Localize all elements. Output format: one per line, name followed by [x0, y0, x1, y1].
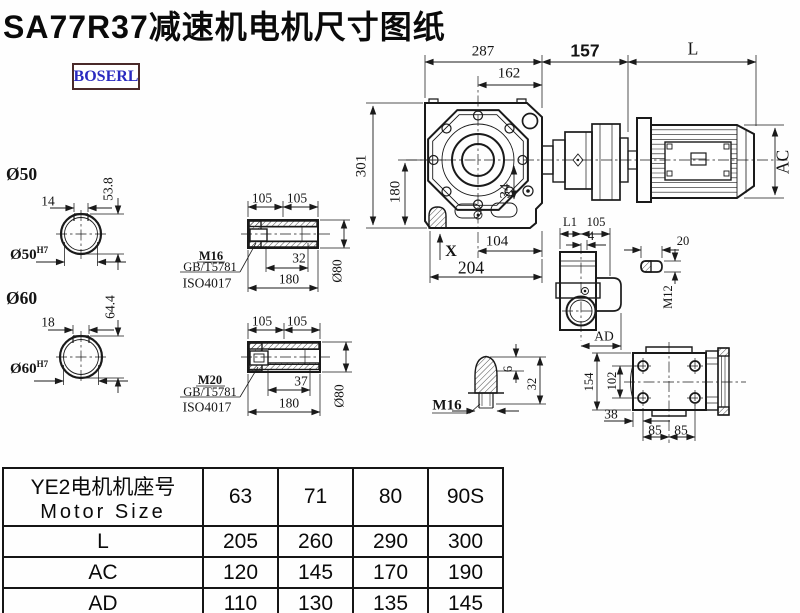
table-header-size-71: 71 [278, 468, 353, 526]
table-cell: 290 [353, 526, 428, 557]
shaft50-callout: Ø50 [6, 166, 37, 184]
table-cell: 145 [278, 557, 353, 588]
shaft60-key-height: 64.4 [103, 295, 117, 319]
sleeve-bottom-105-left: 105 [252, 314, 272, 328]
sleeve-top-105-right: 105 [287, 191, 307, 205]
drawing-sheet: SA77R37减速机电机尺寸图纸 BOSERL [0, 0, 800, 613]
coupling-adapter [542, 124, 637, 200]
dim-AC-label: AC [774, 150, 792, 174]
key-detail [624, 246, 681, 284]
sleeve-bottom-180: 180 [279, 396, 299, 410]
shaft50-key-width: 14 [41, 194, 55, 208]
table-cell: 205 [203, 526, 278, 557]
flange-154-label: 154 [583, 373, 596, 392]
sleeve-top-105-left: 105 [252, 191, 272, 205]
x-marker-label: X [445, 244, 457, 260]
table-cell: 110 [203, 588, 278, 613]
row-label-L: L [3, 526, 203, 557]
side-view-4: 4 [588, 230, 594, 243]
dim-L-label: L [688, 40, 699, 58]
side-view-105: 105 [587, 216, 606, 229]
sleeve-top-180: 180 [279, 272, 299, 286]
table-header-row: YE2电机机座号 Motor Size 63 71 80 90S [3, 468, 503, 526]
table-row-AD: AD 110 130 135 145 [3, 588, 503, 613]
table-cell: 300 [428, 526, 503, 557]
shaft50-key-height: 53.8 [101, 177, 115, 201]
table-header-en: Motor Size [4, 501, 202, 524]
dim-104-label: 104 [486, 235, 509, 250]
dim-287-label: 287 [472, 45, 495, 60]
flange-102-label: 102 [606, 372, 619, 391]
sleeve-bottom-105-right: 105 [287, 314, 307, 328]
plug-6-label: 6 [502, 366, 515, 372]
technical-drawing [0, 0, 800, 462]
table-header-cn: YE2电机机座号 [4, 471, 202, 501]
table-header-size-63: 63 [203, 468, 278, 526]
table-row-AC: AC 120 145 170 190 [3, 557, 503, 588]
table-row-L: L 205 260 290 300 [3, 526, 503, 557]
dim-157-label: 157 [570, 42, 599, 60]
plug-32-label: 32 [526, 378, 539, 391]
key-M12-label: M12 [662, 285, 675, 309]
flange-85-left-label: 85 [648, 423, 662, 437]
sleeve-top-32: 32 [292, 251, 306, 265]
dim-204-label: 204 [458, 259, 484, 277]
table-header-size-80: 80 [353, 468, 428, 526]
table-header-size-90S: 90S [428, 468, 503, 526]
table-cell: 260 [278, 526, 353, 557]
sleeve-bottom-standard2: ISO4017 [183, 400, 232, 414]
shaft60-callout: Ø60 [6, 290, 37, 308]
plug-M16-label: M16 [432, 399, 461, 414]
table-cell: 145 [428, 588, 503, 613]
row-label-AC: AC [3, 557, 203, 588]
dim-180-label: 180 [389, 181, 404, 204]
dim-162-label: 162 [498, 67, 521, 82]
shaft50-bore-fit: Ø50H7 [10, 246, 48, 263]
side-view-L1: L1 [563, 216, 577, 229]
motor-size-table: YE2电机机座号 Motor Size 63 71 80 90S L 205 2… [2, 467, 504, 613]
table-cell: 120 [203, 557, 278, 588]
table-cell: 190 [428, 557, 503, 588]
sleeve-top-standard2: ISO4017 [183, 276, 232, 290]
sleeve-top-standard1: GB/T5781 [183, 261, 236, 274]
sleeve-bottom-37: 37 [294, 374, 308, 388]
dim-34-label: 34 [499, 184, 514, 199]
table-header-motor-size: YE2电机机座号 Motor Size [3, 468, 203, 526]
sleeve-bottom-dia80: Ø80 [332, 384, 346, 407]
dim-301-label: 301 [355, 155, 370, 178]
gearbox-front-view [425, 99, 542, 228]
mounting-flange-view [592, 342, 746, 443]
table-cell: 170 [353, 557, 428, 588]
shaft-detail-60 [34, 320, 128, 393]
row-label-AD: AD [3, 588, 203, 613]
key-20-label: 20 [677, 235, 690, 248]
shaft60-key-width: 18 [41, 315, 55, 329]
shaft60-bore-fit: Ø60H7 [10, 360, 48, 377]
flange-85-right-label: 85 [674, 423, 688, 437]
table-cell: 135 [353, 588, 428, 613]
table-cell: 130 [278, 588, 353, 613]
sleeve-top-dia80: Ø80 [330, 259, 344, 282]
side-view-AD: AD [594, 329, 614, 343]
flange-38-label: 38 [604, 407, 618, 421]
sleeve-bottom-standard1: GB/T5781 [183, 386, 236, 399]
shaft-detail-50 [36, 198, 126, 270]
